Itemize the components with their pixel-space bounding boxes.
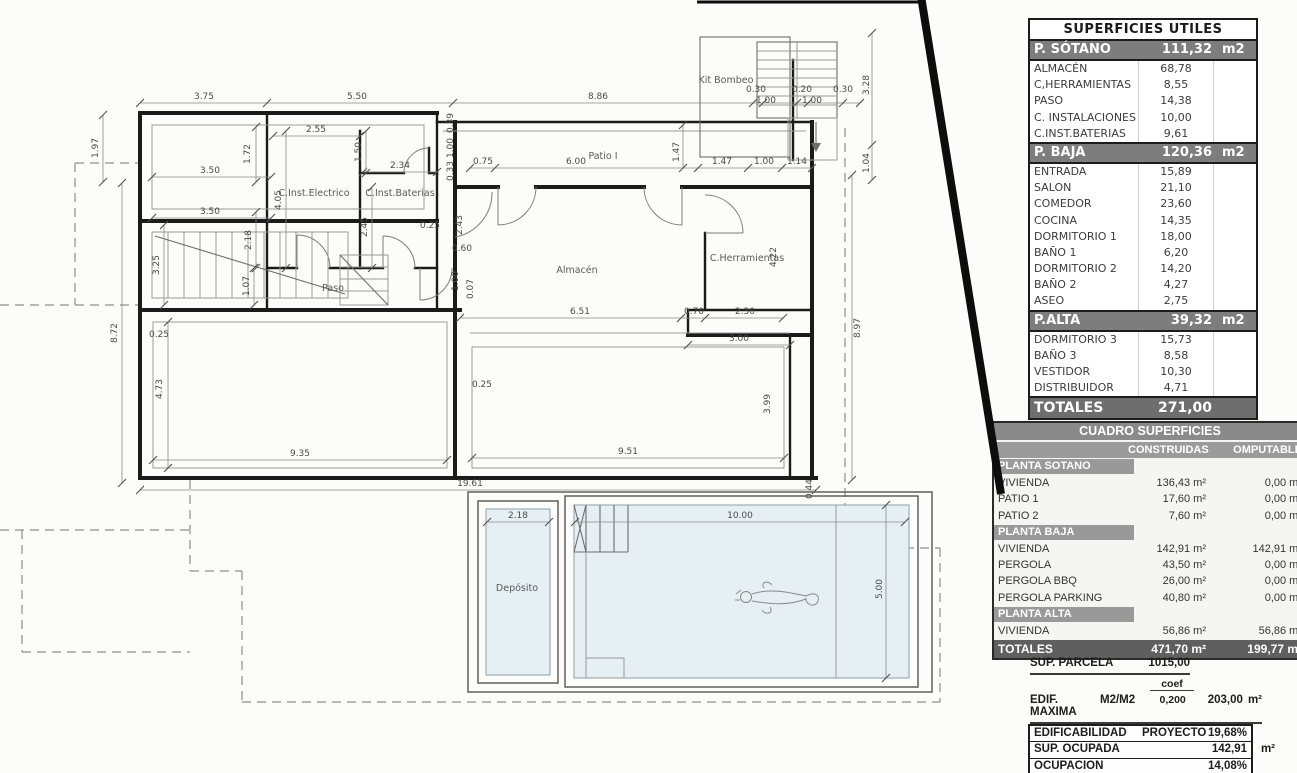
- room-area: 10,00: [1139, 110, 1214, 126]
- room-area: 15,73: [1139, 332, 1214, 348]
- totals-construidas: 471,70 m²: [1128, 640, 1206, 658]
- ratio-row: OCUPACION14,08%: [1030, 759, 1251, 773]
- room-area: 2,75: [1139, 293, 1214, 309]
- edif-m2: m²: [1248, 694, 1262, 706]
- ratio-row: SUP. OCUPADA142,91m²: [1030, 742, 1251, 758]
- table-row: PERGOLA BBQ26,00 m²0,00 m²: [994, 573, 1297, 589]
- edif-value: 203,00: [1208, 694, 1243, 706]
- section-name: P. SÓTANO: [1030, 41, 1138, 59]
- room-name: DORMITORIO 3: [1030, 332, 1139, 348]
- room-area: 8,55: [1139, 77, 1214, 93]
- item-name: PERGOLA: [994, 557, 1128, 573]
- edif-label: EDIF. MAXIMA: [1030, 694, 1100, 718]
- room-unit: [1214, 277, 1256, 293]
- table-row: DORMITORIO 315,73: [1030, 332, 1256, 348]
- table-row: PASO14,38: [1030, 93, 1256, 109]
- table-row: COCINA14,35: [1030, 213, 1256, 229]
- totals-row: TOTALES 471,70 m² 199,77 m²: [994, 640, 1297, 658]
- room-area: 8,58: [1139, 348, 1214, 364]
- table-row: BAÑO 24,27: [1030, 277, 1256, 293]
- room-unit: [1214, 61, 1256, 77]
- sup-parcela-row: SUP. PARCELA 1015,00: [1030, 657, 1190, 675]
- room-area: 21,10: [1139, 180, 1214, 196]
- ratio-mid: [1142, 742, 1204, 757]
- computables-value: 56,86 m²: [1206, 623, 1297, 639]
- ratio-unit-outside: m²: [1261, 742, 1275, 757]
- item-name: PERGOLA PARKING: [994, 590, 1128, 606]
- item-name: VIVIENDA: [994, 623, 1128, 639]
- table-title: SUPERFICIES UTILES: [1030, 20, 1256, 39]
- construidas-value: 56,86 m²: [1128, 623, 1206, 639]
- section-name: P. BAJA: [1030, 144, 1138, 162]
- column-header-row: CONSTRUIDAS OMPUTABLE: [994, 442, 1297, 458]
- room-unit: [1214, 77, 1256, 93]
- item-name: PATIO 2: [994, 508, 1128, 524]
- table-row: PATIO 27,60 m²0,00 m²: [994, 508, 1297, 524]
- table-row: DORMITORIO 118,00: [1030, 229, 1256, 245]
- room-name: ASEO: [1030, 293, 1139, 309]
- room-name: DORMITORIO 2: [1030, 261, 1139, 277]
- edif-maxima-row: EDIF. MAXIMA M2/M2 0,200 203,00 m²: [1030, 694, 1262, 724]
- room-area: 14,38: [1139, 93, 1214, 109]
- room-area: 6,20: [1139, 245, 1214, 261]
- ratio-label: OCUPACION: [1034, 759, 1142, 773]
- room-unit: [1214, 196, 1256, 212]
- section-unit: m2: [1212, 312, 1256, 330]
- table-body: PLANTA SOTANOVIVIENDA136,43 m²0,00 m²PAT…: [994, 459, 1297, 639]
- floor-section-header: P.ALTA39,32m2: [1030, 310, 1256, 332]
- room-unit: [1214, 126, 1256, 142]
- item-name: VIVIENDA: [994, 541, 1128, 557]
- section-unit: m2: [1212, 144, 1256, 162]
- table-row: VESTIDOR10,30: [1030, 364, 1256, 380]
- table-row: COMEDOR23,60: [1030, 196, 1256, 212]
- construidas-value: 26,00 m²: [1128, 573, 1206, 589]
- table-row: BAÑO 16,20: [1030, 245, 1256, 261]
- room-unit: [1214, 110, 1256, 126]
- ratio-row: EDIFICABILIDADPROYECTO19,68%: [1030, 726, 1251, 742]
- construidas-value: 142,91 m²: [1128, 541, 1206, 557]
- table-row: C.INST.BATERIAS9,61: [1030, 126, 1256, 142]
- table-row: ALMACÉN68,78: [1030, 61, 1256, 77]
- room-unit: [1214, 245, 1256, 261]
- sup-parcela-label: SUP. PARCELA: [1030, 657, 1113, 669]
- construidas-value: 17,60 m²: [1128, 491, 1206, 507]
- computables-value: 0,00 m²: [1206, 491, 1297, 507]
- ratio-value: 19,68%: [1204, 726, 1247, 741]
- item-name: PERGOLA BBQ: [994, 573, 1128, 589]
- col-computables: OMPUTABLE: [1206, 442, 1297, 458]
- room-name: ENTRADA: [1030, 164, 1139, 180]
- room-name: BAÑO 2: [1030, 277, 1139, 293]
- table-row: DISTRIBUIDOR4,71: [1030, 380, 1256, 396]
- totals-value: 271,00: [1138, 398, 1212, 418]
- section-area: 120,36: [1138, 144, 1212, 162]
- construidas-value: 40,80 m²: [1128, 590, 1206, 606]
- room-area: 9,61: [1139, 126, 1214, 142]
- totals-label: TOTALES: [994, 640, 1128, 658]
- room-name: COMEDOR: [1030, 196, 1139, 212]
- table-body: P. SÓTANO111,32m2ALMACÉN68,78C,HERRAMIEN…: [1030, 39, 1256, 396]
- item-name: VIVIENDA: [994, 475, 1128, 491]
- room-area: 15,89: [1139, 164, 1214, 180]
- room-unit: [1214, 348, 1256, 364]
- superficies-utiles-table: SUPERFICIES UTILES P. SÓTANO111,32m2ALMA…: [1028, 18, 1258, 420]
- totals-row: TOTALES 271,00: [1030, 396, 1256, 418]
- sup-parcela-value: 1015,00: [1148, 657, 1190, 669]
- table-row: PATIO 117,60 m²0,00 m²: [994, 491, 1297, 507]
- room-unit: [1214, 293, 1256, 309]
- room-unit: [1214, 180, 1256, 196]
- col-construidas: CONSTRUIDAS: [1128, 442, 1206, 458]
- edif-unit: M2/M2: [1100, 694, 1146, 706]
- drawing-sheet: 3.755.508.860.301.000.201.000.303.281.04…: [0, 0, 1297, 773]
- ratio-label: EDIFICABILIDAD: [1034, 726, 1142, 741]
- table-row: BAÑO 38,58: [1030, 348, 1256, 364]
- room-area: 10,30: [1139, 364, 1214, 380]
- construidas-value: 7,60 m²: [1128, 508, 1206, 524]
- ratio-label: SUP. OCUPADA: [1034, 742, 1142, 757]
- table-row: SALON21,10: [1030, 180, 1256, 196]
- ratio-mid: PROYECTO: [1142, 726, 1204, 741]
- table-row: C. INSTALACIONES10,00: [1030, 110, 1256, 126]
- table-row: DORMITORIO 214,20: [1030, 261, 1256, 277]
- room-name: BAÑO 1: [1030, 245, 1139, 261]
- totals-label: TOTALES: [1030, 398, 1138, 418]
- room-name: DORMITORIO 1: [1030, 229, 1139, 245]
- room-area: 4,71: [1139, 380, 1214, 396]
- room-unit: [1214, 93, 1256, 109]
- ratio-value: 14,08%: [1204, 759, 1247, 773]
- computables-value: 0,00 m²: [1206, 557, 1297, 573]
- section-area: 111,32: [1138, 41, 1212, 59]
- ratios-box: EDIFICABILIDADPROYECTO19,68%SUP. OCUPADA…: [1028, 724, 1253, 773]
- room-name: BAÑO 3: [1030, 348, 1139, 364]
- room-area: 18,00: [1139, 229, 1214, 245]
- item-name: PATIO 1: [994, 491, 1128, 507]
- room-unit: [1214, 261, 1256, 277]
- computables-value: 0,00 m²: [1206, 590, 1297, 606]
- room-name: C. INSTALACIONES: [1030, 110, 1139, 126]
- construidas-value: 43,50 m²: [1128, 557, 1206, 573]
- room-area: 4,27: [1139, 277, 1214, 293]
- table-row: VIVIENDA142,91 m²142,91 m²: [994, 541, 1297, 557]
- ratio-mid: [1142, 759, 1204, 773]
- room-unit: [1214, 213, 1256, 229]
- room-name: C.INST.BATERIAS: [1030, 126, 1139, 142]
- room-name: SALON: [1030, 180, 1139, 196]
- room-unit: [1214, 332, 1256, 348]
- floor-section-header: P. BAJA120,36m2: [1030, 142, 1256, 164]
- table-row: C,HERRAMIENTAS8,55: [1030, 77, 1256, 93]
- planta-section-bar: PLANTA ALTA: [994, 607, 1134, 622]
- coef-label: coef: [1150, 678, 1194, 691]
- room-name: DISTRIBUIDOR: [1030, 380, 1139, 396]
- table-row: VIVIENDA136,43 m²0,00 m²: [994, 475, 1297, 491]
- room-name: VESTIDOR: [1030, 364, 1139, 380]
- room-name: PASO: [1030, 93, 1139, 109]
- totals-computables: 199,77 m²: [1206, 640, 1297, 658]
- computables-value: 0,00 m²: [1206, 573, 1297, 589]
- room-area: 68,78: [1139, 61, 1214, 77]
- cuadro-superficies-table: CUADRO SUPERFICIES CONSTRUIDAS OMPUTABLE…: [992, 421, 1297, 660]
- computables-value: 142,91 m²: [1206, 541, 1297, 557]
- table-row: PERGOLA PARKING40,80 m²0,00 m²: [994, 590, 1297, 606]
- room-unit: [1214, 229, 1256, 245]
- planta-section-bar: PLANTA BAJA: [994, 525, 1134, 540]
- section-name: P.ALTA: [1030, 312, 1138, 330]
- room-name: ALMACÉN: [1030, 61, 1139, 77]
- ratio-value: 142,91: [1204, 742, 1247, 757]
- construidas-value: 136,43 m²: [1128, 475, 1206, 491]
- room-area: 14,20: [1139, 261, 1214, 277]
- table-row: PERGOLA43,50 m²0,00 m²: [994, 557, 1297, 573]
- table-row: ASEO2,75: [1030, 293, 1256, 309]
- table-title: CUADRO SUPERFICIES: [994, 423, 1297, 442]
- table-row: ENTRADA15,89: [1030, 164, 1256, 180]
- section-area: 39,32: [1138, 312, 1212, 330]
- planta-section-bar: PLANTA SOTANO: [994, 459, 1134, 474]
- table-row: VIVIENDA56,86 m²56,86 m²: [994, 623, 1297, 639]
- edif-coef: 0,200: [1146, 694, 1200, 706]
- room-name: C,HERRAMIENTAS: [1030, 77, 1139, 93]
- summary-panel: SUPERFICIES UTILES P. SÓTANO111,32m2ALMA…: [0, 0, 1297, 773]
- room-area: 23,60: [1139, 196, 1214, 212]
- computables-value: 0,00 m²: [1206, 508, 1297, 524]
- room-area: 14,35: [1139, 213, 1214, 229]
- room-name: COCINA: [1030, 213, 1139, 229]
- room-unit: [1214, 380, 1256, 396]
- room-unit: [1214, 364, 1256, 380]
- floor-section-header: P. SÓTANO111,32m2: [1030, 39, 1256, 61]
- computables-value: 0,00 m²: [1206, 475, 1297, 491]
- room-unit: [1214, 164, 1256, 180]
- section-unit: m2: [1212, 41, 1256, 59]
